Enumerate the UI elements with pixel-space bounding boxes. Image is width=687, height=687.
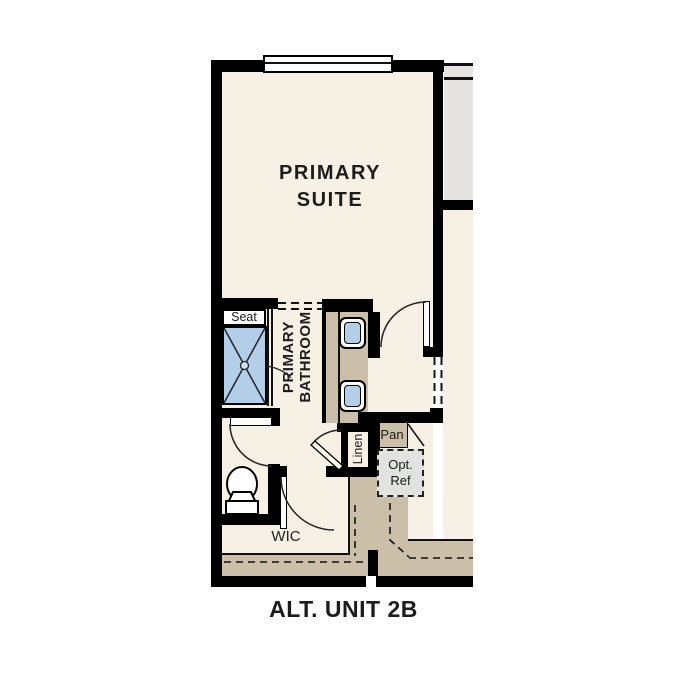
wall-vestibule-west <box>368 312 380 358</box>
entry-hall-floor-left <box>378 497 408 576</box>
bottom-strip-floor <box>222 555 368 576</box>
opt-ref-box: Opt. Ref <box>377 449 424 497</box>
wall-wic-hall-divider <box>368 550 378 576</box>
wic-label: WIC <box>256 528 316 545</box>
hall-floor-edge-line <box>408 539 473 541</box>
wall-entry-strike-stub <box>423 347 443 357</box>
primary-bathroom-label-line1: PRIMARY <box>280 297 297 417</box>
opt-ref-label-line1: Opt. <box>379 457 422 473</box>
primary-bathroom-label: PRIMARY BATHROOM <box>280 297 314 417</box>
wall-left <box>211 60 222 587</box>
entry-hall-floor-bottom <box>408 541 473 576</box>
primary-suite-label: PRIMARY SUITE <box>230 160 430 214</box>
primary-suite-label-line2: SUITE <box>230 187 430 214</box>
wall-wic-stub-right <box>326 466 343 477</box>
wic-right-edge-line <box>348 477 350 555</box>
wic-door-leaf <box>280 476 287 529</box>
window <box>263 55 393 73</box>
adjacent-gray-area <box>444 66 473 200</box>
window-mullion-line <box>265 62 391 64</box>
primary-bathroom-label-line2: BATHROOM <box>297 297 314 417</box>
opt-ref-label-line2: Ref <box>379 473 422 489</box>
wall-bottom-right <box>376 576 473 587</box>
wall-bottom-left <box>211 576 366 587</box>
wall-vanity-back <box>322 312 326 423</box>
wall-adjacent-cross <box>433 200 473 210</box>
shower-pan <box>222 326 267 405</box>
shower-glass-line-2 <box>271 309 273 406</box>
wall-suite-south-right <box>322 299 373 312</box>
wic-floor-edge-line <box>222 553 350 555</box>
sink-1-basin <box>344 322 361 344</box>
sink-2-basin <box>344 385 361 407</box>
adjacent-floor-strip <box>443 210 473 541</box>
wall-suite-south-left <box>211 298 278 309</box>
wall-wc-bottom <box>211 514 280 525</box>
shower-seat-label: Seat <box>222 310 266 324</box>
primary-suite-label-line1: PRIMARY <box>230 160 430 187</box>
wall-right-upper <box>433 72 443 351</box>
adjacent-thin-line-1 <box>444 63 473 66</box>
wc-door-leaf <box>230 417 272 426</box>
wall-wic-stub-left <box>268 466 287 476</box>
shower-glass-line-1 <box>267 309 269 406</box>
pantry-label: Pan <box>375 427 409 442</box>
floorplan: Seat Opt. Ref <box>0 0 687 687</box>
plan-title: ALT. UNIT 2B <box>0 596 687 623</box>
adjacent-thin-line-2 <box>444 77 473 80</box>
linen-label: Linen <box>351 428 365 470</box>
entry-door-leaf <box>423 301 430 347</box>
